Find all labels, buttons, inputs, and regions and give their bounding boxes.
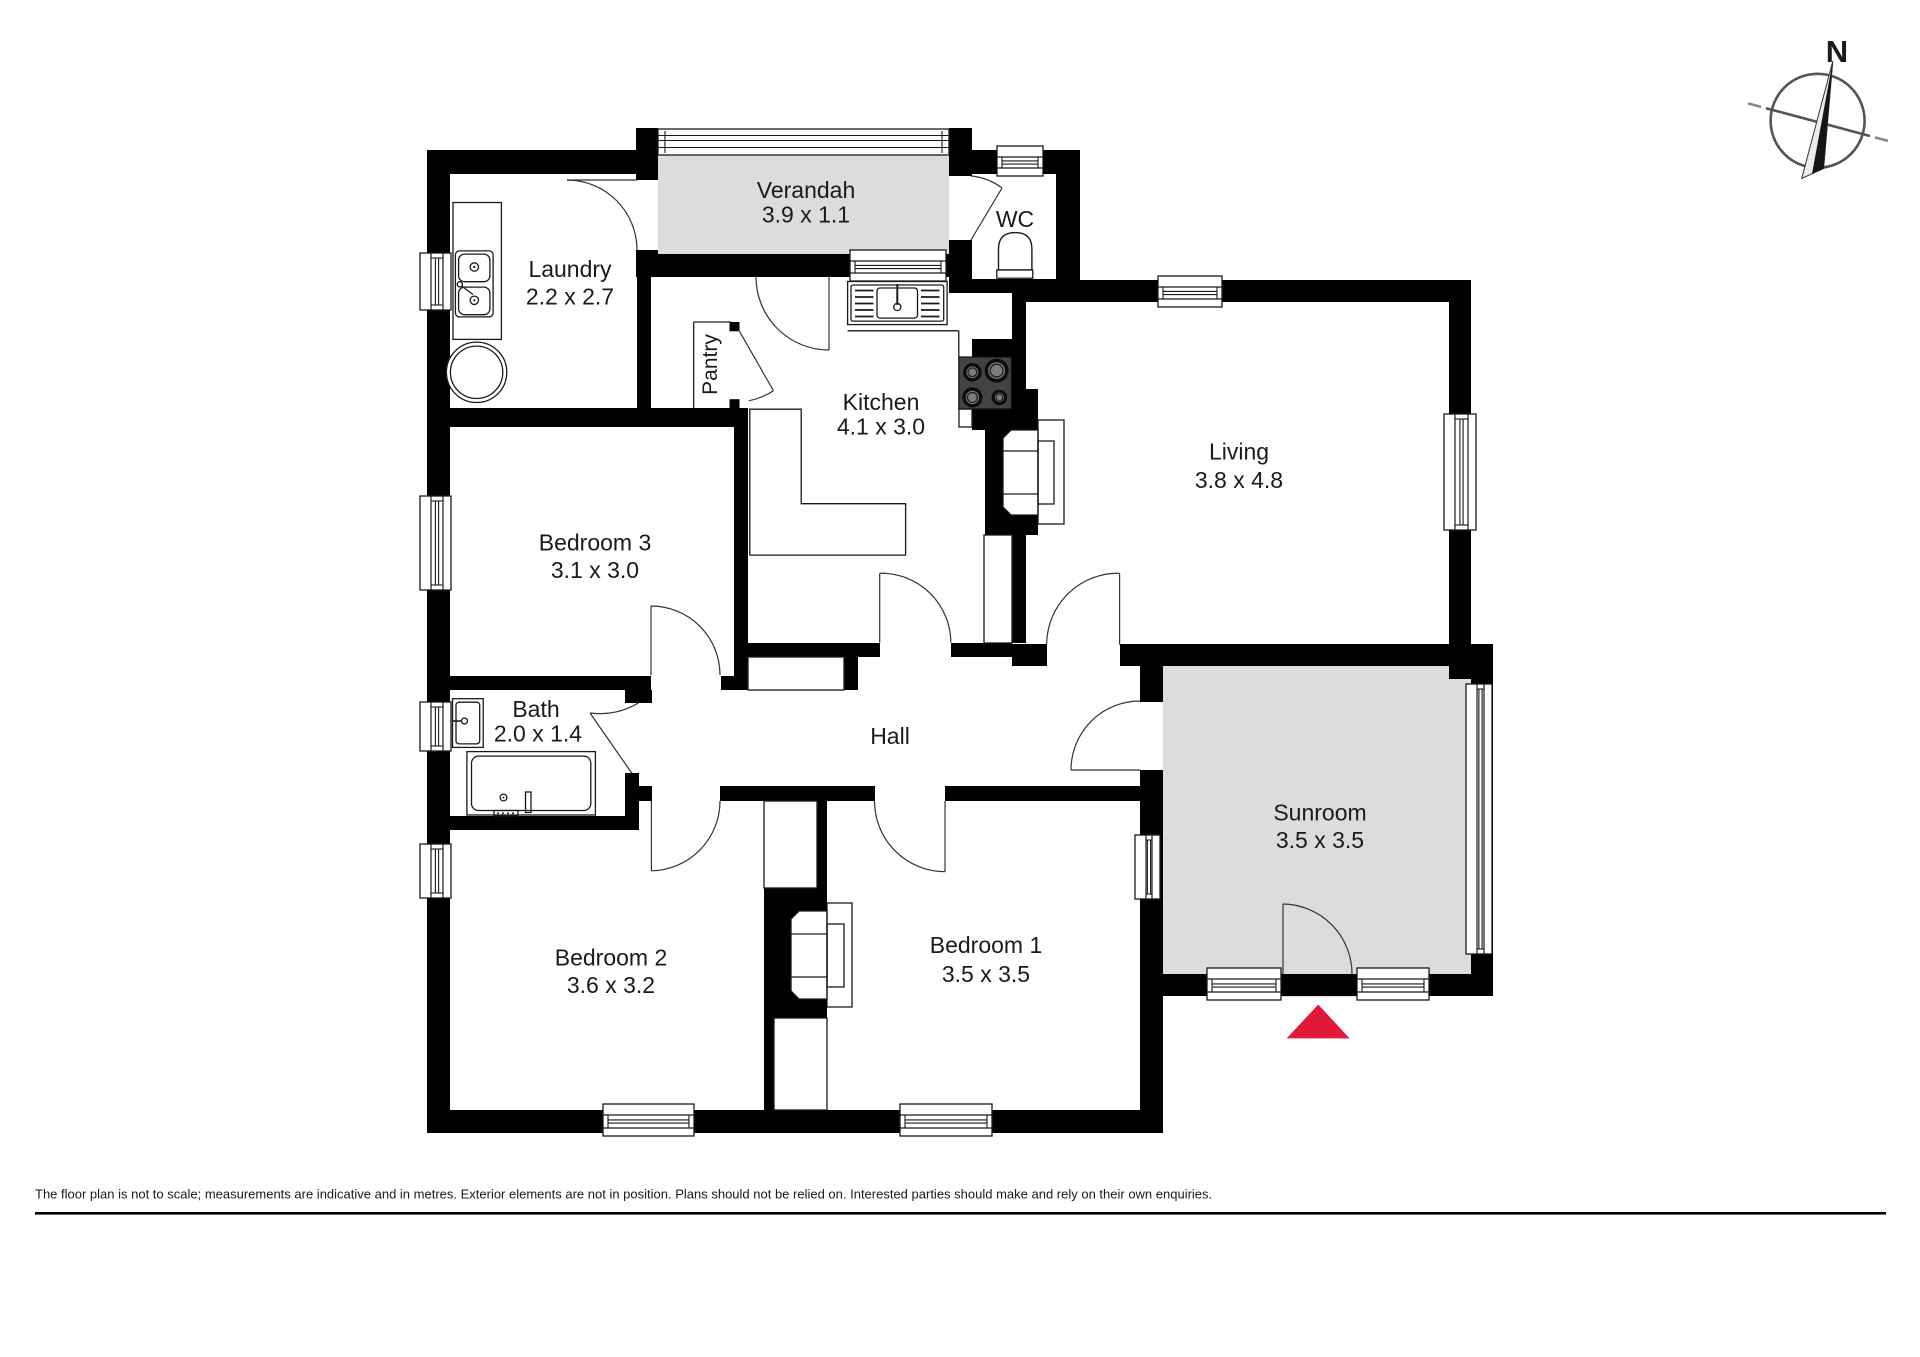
svg-text:Laundry: Laundry [528, 256, 612, 282]
svg-text:3.5 x 3.5: 3.5 x 3.5 [1276, 827, 1364, 853]
svg-text:Sunroom: Sunroom [1273, 800, 1366, 826]
svg-text:Bedroom 2: Bedroom 2 [555, 945, 668, 971]
svg-text:2.2 x 2.7: 2.2 x 2.7 [526, 284, 614, 310]
svg-text:3.5 x 3.5: 3.5 x 3.5 [942, 961, 1030, 987]
svg-text:3.9 x 1.1: 3.9 x 1.1 [762, 202, 850, 228]
svg-text:Bedroom 3: Bedroom 3 [539, 530, 652, 556]
svg-text:Hall: Hall [870, 723, 910, 749]
svg-text:3.8 x 4.8: 3.8 x 4.8 [1195, 467, 1283, 493]
svg-text:Kitchen: Kitchen [843, 389, 920, 415]
svg-text:3.6 x 3.2: 3.6 x 3.2 [567, 972, 655, 998]
svg-text:4.1 x 3.0: 4.1 x 3.0 [837, 414, 925, 440]
svg-text:Living: Living [1209, 439, 1269, 465]
svg-text:Bath: Bath [512, 696, 559, 722]
svg-text:2.0 x 1.4: 2.0 x 1.4 [494, 721, 582, 747]
svg-text:WC: WC [996, 206, 1034, 232]
svg-text:Verandah: Verandah [757, 177, 855, 203]
svg-text:N: N [1826, 34, 1848, 69]
svg-text:Bedroom 1: Bedroom 1 [930, 932, 1043, 958]
svg-text:3.1 x 3.0: 3.1 x 3.0 [551, 557, 639, 583]
svg-text:Pantry: Pantry [699, 334, 722, 395]
svg-text:The floor plan is not to scale: The floor plan is not to scale; measurem… [35, 1187, 1212, 1202]
